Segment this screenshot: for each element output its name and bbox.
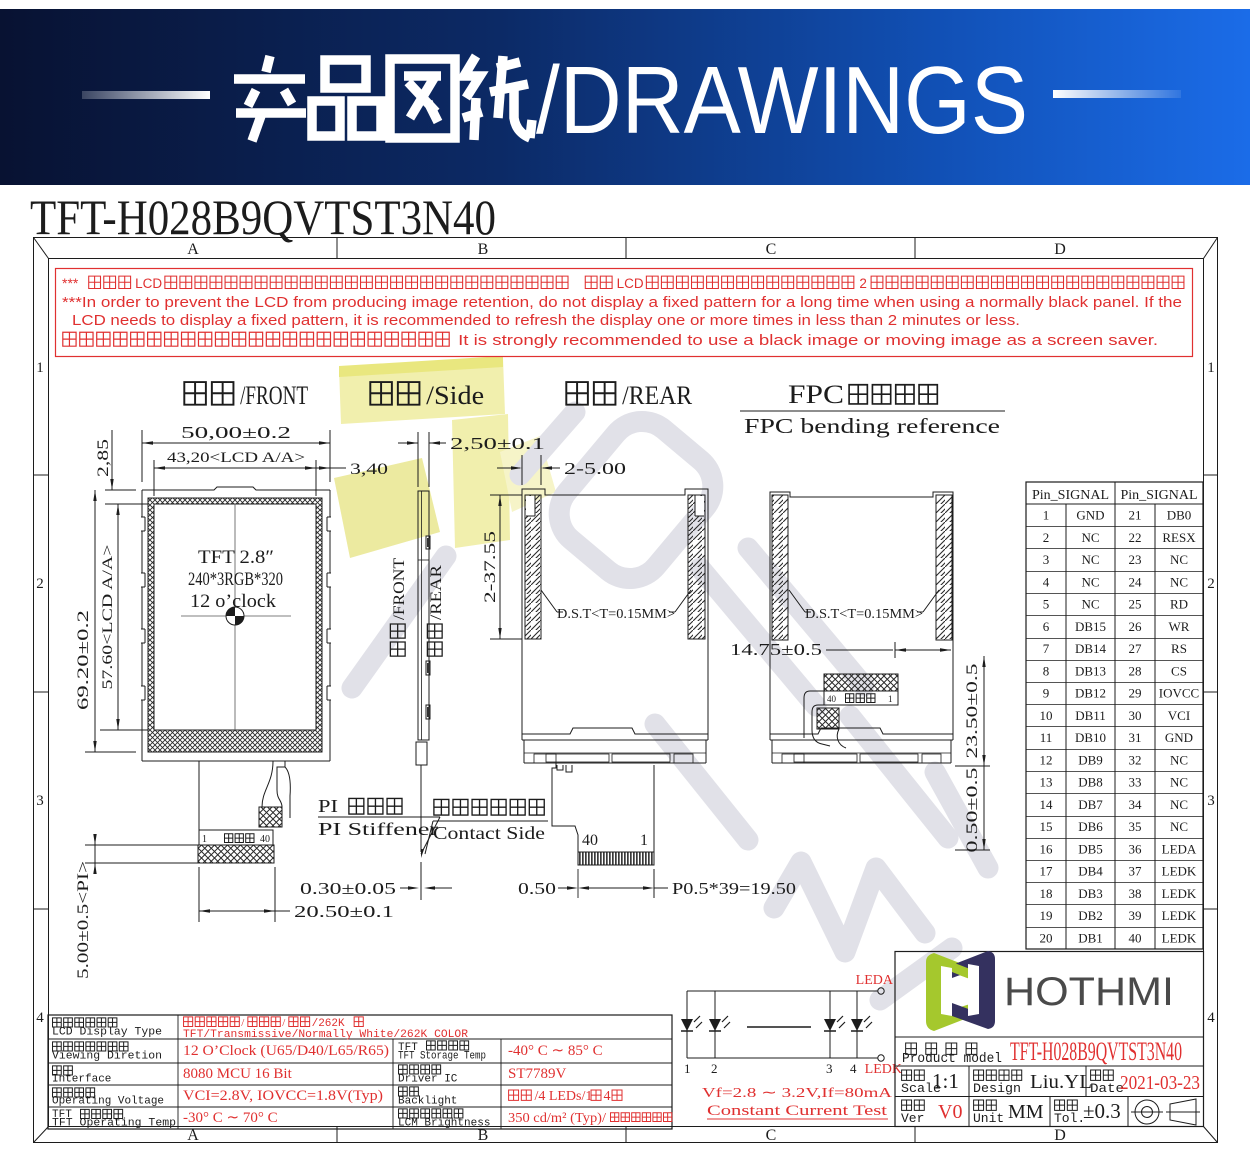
svg-text:Viewing Diretion: Viewing Diretion <box>52 1051 162 1063</box>
svg-text:D.S.T<T=0.15MM>: D.S.T<T=0.15MM> <box>557 607 675 622</box>
svg-text:LCD: LCD <box>135 276 162 291</box>
svg-text:C: C <box>766 241 777 258</box>
svg-text:33: 33 <box>1129 775 1142 790</box>
svg-text:43,20<LCD A/A>: 43,20<LCD A/A> <box>167 450 305 466</box>
svg-text:5.00±0.5<PI>: 5.00±0.5<PI> <box>75 861 92 979</box>
svg-text:±0.3: ±0.3 <box>1083 1099 1121 1123</box>
svg-text:DB5: DB5 <box>1078 841 1103 856</box>
svg-text:ST7789V: ST7789V <box>508 1066 567 1082</box>
svg-text:8: 8 <box>1043 663 1050 678</box>
svg-text:1:1: 1:1 <box>932 1069 959 1093</box>
svg-text:2: 2 <box>859 276 867 291</box>
svg-text:Pin_SIGNAL: Pin_SIGNAL <box>1032 488 1109 503</box>
svg-text:NC: NC <box>1170 574 1188 589</box>
svg-text:38: 38 <box>1129 886 1142 901</box>
svg-text:DB11: DB11 <box>1075 708 1106 723</box>
svg-text:4: 4 <box>1207 1010 1215 1026</box>
svg-text:RESX: RESX <box>1162 530 1196 545</box>
svg-text:12: 12 <box>1040 752 1053 767</box>
svg-text:FPC bending reference: FPC bending reference <box>744 414 1000 438</box>
svg-text:IOVCC: IOVCC <box>1159 686 1199 701</box>
svg-text:Vf=2.8 ∼ 3.2V,If=80mA: Vf=2.8 ∼ 3.2V,If=80mA <box>702 1086 893 1101</box>
svg-text:36: 36 <box>1129 841 1143 856</box>
svg-text:12 O’Clock (U65/D40/L65/R65): 12 O’Clock (U65/D40/L65/R65) <box>183 1043 389 1059</box>
svg-text:DB15: DB15 <box>1075 619 1106 634</box>
svg-text:GND: GND <box>1165 730 1193 745</box>
svg-text:1: 1 <box>684 1061 691 1076</box>
svg-text:3: 3 <box>36 793 44 809</box>
svg-text:RS: RS <box>1171 641 1187 656</box>
svg-text:10: 10 <box>1040 708 1053 723</box>
svg-text:NC: NC <box>1170 819 1188 834</box>
svg-text:TFT-H028B9QVTST3N40: TFT-H028B9QVTST3N40 <box>30 189 496 245</box>
svg-text:LCD: LCD <box>617 276 644 291</box>
svg-text:It is strongly recommended to: It is strongly recommended to use a blac… <box>458 333 1158 349</box>
svg-text:1: 1 <box>36 360 44 376</box>
svg-text:DB7: DB7 <box>1078 797 1103 812</box>
svg-text:11: 11 <box>1040 730 1053 745</box>
svg-text:DB13: DB13 <box>1075 663 1106 678</box>
svg-text:DB14: DB14 <box>1075 641 1107 656</box>
svg-text:23.50±0.5: 23.50±0.5 <box>964 664 981 759</box>
svg-text:NC: NC <box>1081 574 1099 589</box>
svg-text:/REAR: /REAR <box>622 381 693 410</box>
svg-text:-30° C ∼ 70° C: -30° C ∼ 70° C <box>183 1110 278 1126</box>
svg-text:NC: NC <box>1170 552 1188 567</box>
svg-text:31: 31 <box>1129 730 1142 745</box>
svg-text:DB10: DB10 <box>1075 730 1106 745</box>
svg-text:A: A <box>187 241 199 258</box>
svg-text:Date: Date <box>1090 1081 1124 1096</box>
svg-text:TFT Storage Temp: TFT Storage Temp <box>398 1051 486 1063</box>
svg-text:0.50±0.5: 0.50±0.5 <box>964 768 981 853</box>
svg-text:40: 40 <box>582 832 598 849</box>
svg-text:TFT/Transmissive/Normally Whit: TFT/Transmissive/Normally White/262K COL… <box>183 1029 468 1041</box>
svg-text:VCI=2.8V, IOVCC=1.8V(Typ): VCI=2.8V, IOVCC=1.8V(Typ) <box>183 1088 383 1104</box>
svg-text:30: 30 <box>1129 708 1142 723</box>
svg-text:/FRONT: /FRONT <box>391 558 408 620</box>
svg-text:13: 13 <box>1040 775 1053 790</box>
svg-text:LEDK: LEDK <box>1162 930 1197 945</box>
svg-text:LCD needs to display a fixed p: LCD needs to display a fixed pattern, it… <box>72 313 1020 329</box>
svg-text:Driver IC: Driver IC <box>398 1074 458 1086</box>
svg-text:/REAR: /REAR <box>428 565 445 620</box>
svg-text:15: 15 <box>1040 819 1053 834</box>
svg-text:VCI: VCI <box>1168 708 1190 723</box>
svg-text:Unit: Unit <box>973 1111 1004 1126</box>
svg-text:16: 16 <box>1040 841 1054 856</box>
svg-text:NC: NC <box>1170 752 1188 767</box>
svg-text:39: 39 <box>1129 908 1142 923</box>
svg-text:2: 2 <box>36 576 44 592</box>
svg-text:4: 4 <box>603 1089 610 1104</box>
svg-text:17: 17 <box>1040 864 1054 879</box>
svg-text:Product model: Product model <box>902 1051 1002 1067</box>
svg-text:LCD Display Type: LCD Display Type <box>52 1027 162 1039</box>
svg-text:5: 5 <box>1043 597 1050 612</box>
svg-text:14.75±0.5: 14.75±0.5 <box>730 640 822 659</box>
svg-text:22: 22 <box>1129 530 1142 545</box>
svg-text:TFT 2.8″: TFT 2.8″ <box>198 547 274 568</box>
svg-text:/DRAWINGS: /DRAWINGS <box>536 47 1028 154</box>
svg-text:57.60<LCD A/A>: 57.60<LCD A/A> <box>100 545 116 690</box>
svg-text:24: 24 <box>1129 574 1143 589</box>
svg-text:4: 4 <box>850 1061 857 1076</box>
svg-text:P0.5*39=19.50: P0.5*39=19.50 <box>672 879 796 898</box>
svg-text:8080 MCU 16 Bit: 8080 MCU 16 Bit <box>183 1066 293 1082</box>
svg-text:DB9: DB9 <box>1078 752 1103 767</box>
svg-text:1: 1 <box>888 694 893 704</box>
svg-text:B: B <box>478 241 489 258</box>
svg-text:DB0: DB0 <box>1167 508 1192 523</box>
svg-text:LEDK: LEDK <box>1162 864 1197 879</box>
svg-text:NC: NC <box>1081 597 1099 612</box>
svg-text:LEDA: LEDA <box>856 973 894 988</box>
svg-text:Tol.: Tol. <box>1054 1111 1085 1126</box>
svg-text:26: 26 <box>1129 619 1143 634</box>
svg-text:1: 1 <box>1043 508 1050 523</box>
svg-text:TFT Operating Temp: TFT Operating Temp <box>52 1118 176 1130</box>
svg-text:PI Stiffener: PI Stiffener <box>318 819 438 839</box>
svg-text:MM: MM <box>1008 1101 1044 1123</box>
svg-text:***: *** <box>62 275 79 291</box>
svg-text:14: 14 <box>1040 797 1054 812</box>
svg-text:D: D <box>1054 1127 1066 1144</box>
svg-text:4: 4 <box>1043 574 1050 589</box>
svg-text:LEDA: LEDA <box>1162 841 1197 856</box>
svg-text:2,85: 2,85 <box>95 439 112 477</box>
svg-text:4: 4 <box>36 1010 44 1026</box>
svg-text:1: 1 <box>202 834 207 845</box>
svg-text:DB6: DB6 <box>1078 819 1103 834</box>
svg-text:27: 27 <box>1129 641 1143 656</box>
svg-text:Design: Design <box>973 1081 1021 1096</box>
svg-text:2,50±0.1: 2,50±0.1 <box>450 434 545 453</box>
svg-text:Ver: Ver <box>901 1111 924 1126</box>
svg-text:350 cd/m² (Typ)/: 350 cd/m² (Typ)/ <box>508 1111 606 1126</box>
svg-text:3: 3 <box>1043 552 1050 567</box>
svg-text:1: 1 <box>1207 360 1215 376</box>
svg-text:28: 28 <box>1129 663 1142 678</box>
svg-text:Contact Side: Contact Side <box>433 823 545 843</box>
svg-text:DB3: DB3 <box>1078 886 1103 901</box>
svg-text:LEDK: LEDK <box>1162 886 1197 901</box>
svg-text:21: 21 <box>1129 508 1142 523</box>
svg-text:LEDK: LEDK <box>865 1062 902 1077</box>
svg-text:20: 20 <box>1040 930 1053 945</box>
svg-text:0.50: 0.50 <box>518 879 556 898</box>
svg-text:***In order to prevent the LCD: ***In order to prevent the LCD from prod… <box>62 295 1182 311</box>
svg-text:20.50±0.1: 20.50±0.1 <box>294 902 394 921</box>
svg-text:NC: NC <box>1170 797 1188 812</box>
svg-text:-40° C ∼ 85° C: -40° C ∼ 85° C <box>508 1043 603 1059</box>
svg-text:Pin_SIGNAL: Pin_SIGNAL <box>1120 488 1197 503</box>
svg-text:32: 32 <box>1129 752 1142 767</box>
svg-text:2-37.55: 2-37.55 <box>482 531 499 603</box>
svg-text:/Side: /Side <box>426 381 484 410</box>
svg-text:6: 6 <box>1043 619 1050 634</box>
svg-text:DB4: DB4 <box>1078 864 1103 879</box>
svg-text:3: 3 <box>826 1061 833 1076</box>
svg-text:Backlight: Backlight <box>398 1096 457 1108</box>
svg-text:19: 19 <box>1040 908 1053 923</box>
svg-text:7: 7 <box>1043 641 1050 656</box>
svg-text:Interface: Interface <box>52 1074 111 1086</box>
svg-text:2-5.00: 2-5.00 <box>564 459 626 478</box>
svg-text:WR: WR <box>1169 619 1190 634</box>
svg-text:NC: NC <box>1081 530 1099 545</box>
svg-text:40: 40 <box>260 834 270 845</box>
svg-text:18: 18 <box>1040 886 1053 901</box>
svg-text:1: 1 <box>640 832 648 849</box>
svg-text:50,00±0.2: 50,00±0.2 <box>181 423 291 442</box>
svg-text:FPC: FPC <box>788 380 844 409</box>
svg-text:LEDK: LEDK <box>1162 908 1197 923</box>
svg-text:/: / <box>241 1017 245 1029</box>
svg-text:2021-03-23: 2021-03-23 <box>1120 1072 1200 1094</box>
svg-text:2: 2 <box>1207 576 1215 592</box>
svg-text:HOTHMI: HOTHMI <box>1004 970 1174 1014</box>
svg-text:NC: NC <box>1170 775 1188 790</box>
svg-text:69.20±0.2: 69.20±0.2 <box>75 610 92 710</box>
svg-text:37: 37 <box>1129 864 1143 879</box>
svg-text:9: 9 <box>1043 686 1050 701</box>
svg-text:23: 23 <box>1129 552 1142 567</box>
svg-text:2: 2 <box>1043 530 1050 545</box>
svg-text:GND: GND <box>1076 508 1104 523</box>
svg-text:DB12: DB12 <box>1075 686 1106 701</box>
svg-text:/: / <box>282 1017 286 1029</box>
svg-text:PI: PI <box>318 796 338 816</box>
svg-text:NC: NC <box>1081 552 1099 567</box>
svg-text:V0: V0 <box>938 1101 962 1123</box>
svg-text:DB1: DB1 <box>1078 930 1103 945</box>
svg-text:40: 40 <box>827 694 837 704</box>
svg-text:29: 29 <box>1129 686 1142 701</box>
svg-text:D.S.T<T=0.15MM>: D.S.T<T=0.15MM> <box>805 607 923 622</box>
svg-text:40: 40 <box>1129 930 1142 945</box>
svg-text:2: 2 <box>711 1061 718 1076</box>
svg-text:DB8: DB8 <box>1078 775 1103 790</box>
svg-text:TFT-H028B9QVTST3N40: TFT-H028B9QVTST3N40 <box>1010 1037 1182 1066</box>
svg-text:240*3RGB*320: 240*3RGB*320 <box>188 569 283 590</box>
svg-text:12 o’clock: 12 o’clock <box>190 591 277 612</box>
svg-text:25: 25 <box>1129 597 1142 612</box>
svg-text:Operating Voltage: Operating Voltage <box>52 1096 164 1108</box>
svg-text:C: C <box>766 1127 777 1144</box>
svg-text:35: 35 <box>1129 819 1142 834</box>
svg-text:Constant Current Test: Constant Current Test <box>707 1103 888 1119</box>
svg-text:LCM Brightness: LCM Brightness <box>398 1118 490 1130</box>
svg-text:Liu.YL: Liu.YL <box>1030 1071 1092 1093</box>
svg-text:CS: CS <box>1171 663 1187 678</box>
svg-text:/FRONT: /FRONT <box>240 381 308 410</box>
svg-text:3,40: 3,40 <box>350 461 388 478</box>
svg-text:/4 LEDs/1: /4 LEDs/1 <box>534 1089 592 1104</box>
svg-text:DB2: DB2 <box>1078 908 1103 923</box>
svg-text:0.30±0.05: 0.30±0.05 <box>300 879 396 898</box>
svg-text:D: D <box>1054 241 1066 258</box>
svg-text:34: 34 <box>1129 797 1143 812</box>
svg-text:3: 3 <box>1207 793 1215 809</box>
svg-text:RD: RD <box>1170 597 1188 612</box>
